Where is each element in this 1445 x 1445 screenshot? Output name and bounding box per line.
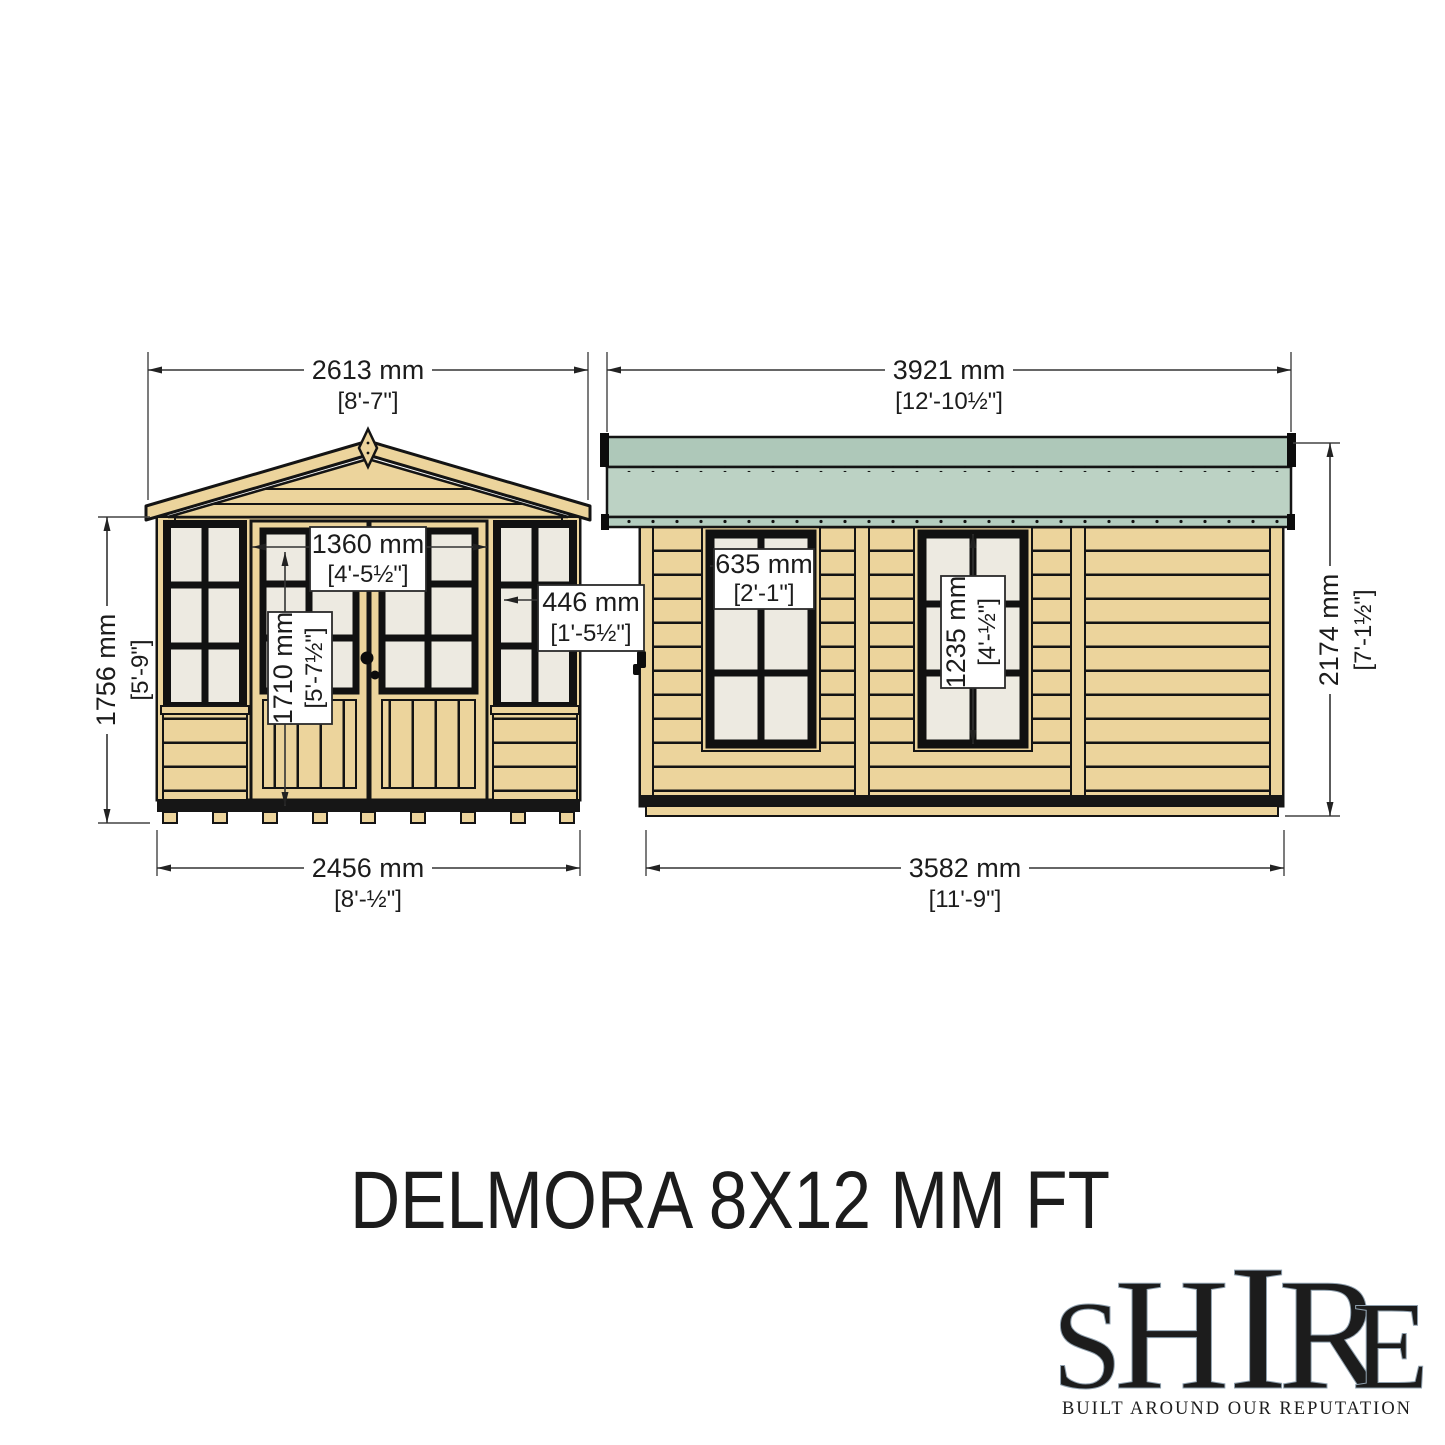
side-wall-height-ft: [7'-1½"] <box>1350 589 1377 670</box>
front-door-height-mm: 1710 mm <box>268 612 298 725</box>
side-floor-board <box>646 806 1278 816</box>
side-window-height-mm: 1235 mm <box>941 576 971 689</box>
side-trim-1 <box>855 527 869 806</box>
front-right-panel <box>493 714 577 800</box>
front-left-panel <box>163 714 247 800</box>
door-latch <box>371 671 380 680</box>
logo-letter-h: H <box>1114 1245 1230 1423</box>
front-base-width-mm: 2456 mm <box>312 853 425 883</box>
side-roof <box>600 433 1296 530</box>
side-roof-length-ft: [12'-10½"] <box>895 388 1003 415</box>
elevation-drawing: 2613 mm [8'-7"] 3921 mm [12'-10½"] 1756 … <box>0 0 1445 1445</box>
front-door-width-mm: 1360 mm <box>312 529 425 559</box>
logo-letter-s: S <box>1052 1277 1122 1416</box>
front-elevation-drawing <box>146 429 590 823</box>
side-base-rail <box>640 795 1283 806</box>
front-window-width-ft: [1'-5½"] <box>550 620 631 647</box>
side-trim-2 <box>1071 527 1085 806</box>
front-base-rail <box>157 800 580 812</box>
drawing-sheet: 2613 mm [8'-7"] 3921 mm [12'-10½"] 1756 … <box>0 0 1445 1445</box>
side-wall-height-mm: 2174 mm <box>1314 574 1344 687</box>
door-knob <box>361 652 374 665</box>
front-base-width-ft: [8'-½"] <box>334 886 402 913</box>
front-roof-width-mm: 2613 mm <box>312 355 425 385</box>
front-door-height-ft: [5'-7½"] <box>301 627 328 708</box>
side-window-width-mm: 635 mm <box>715 549 813 579</box>
drawing-title: DELMORA 8X12 MM FT <box>350 1155 1110 1246</box>
front-door-width-ft: [4'-5½"] <box>327 561 408 588</box>
side-base-length-ft: [11'-9"] <box>929 886 1002 913</box>
front-height-mm: 1756 mm <box>91 614 121 727</box>
front-floor-bearers <box>163 812 574 823</box>
front-height-ft: [5'-9"] <box>127 639 154 700</box>
front-roof-width-ft: [8'-7"] <box>337 388 398 415</box>
logo-tagline: BUILT AROUND OUR REPUTATION <box>1062 1399 1412 1419</box>
front-window-width-mm: 446 mm <box>542 587 640 617</box>
front-left-window-sill <box>161 706 249 714</box>
side-roof-length-mm: 3921 mm <box>893 355 1006 385</box>
shire-logo: S H I R E <box>1052 1228 1429 1427</box>
logo-letter-e: E <box>1352 1277 1429 1416</box>
front-right-window-sill <box>491 706 579 714</box>
side-window-height-ft: [4'-½"] <box>974 598 1001 666</box>
side-base-length-mm: 3582 mm <box>909 853 1022 883</box>
side-right-corner-trim <box>1270 527 1283 806</box>
side-window-width-ft: [2'-1"] <box>733 580 794 607</box>
